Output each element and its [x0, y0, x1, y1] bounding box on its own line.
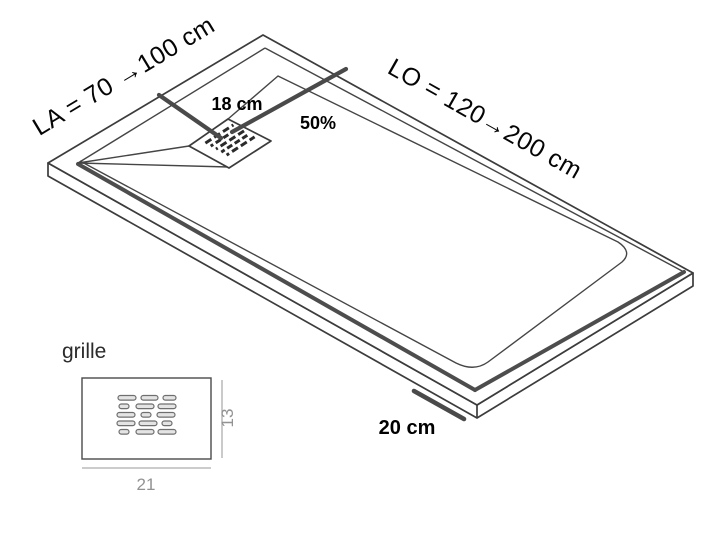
diagram-svg: LA = 70 →100 cm LO = 120→200 cm 18 cm 50… — [0, 0, 720, 540]
drain-offset-label: 18 cm — [211, 94, 262, 114]
grille-width-value: 21 — [137, 475, 156, 494]
shower-tray-dimension-diagram: LA = 70 →100 cm LO = 120→200 cm 18 cm 50… — [0, 0, 720, 540]
slope-label: 50% — [300, 113, 336, 133]
grille-detail-rect — [82, 378, 211, 459]
corner-dimension-label: 20 cm — [379, 417, 436, 439]
grille-detail-title: grille — [62, 340, 106, 363]
grille-height-value: 13 — [218, 409, 237, 428]
